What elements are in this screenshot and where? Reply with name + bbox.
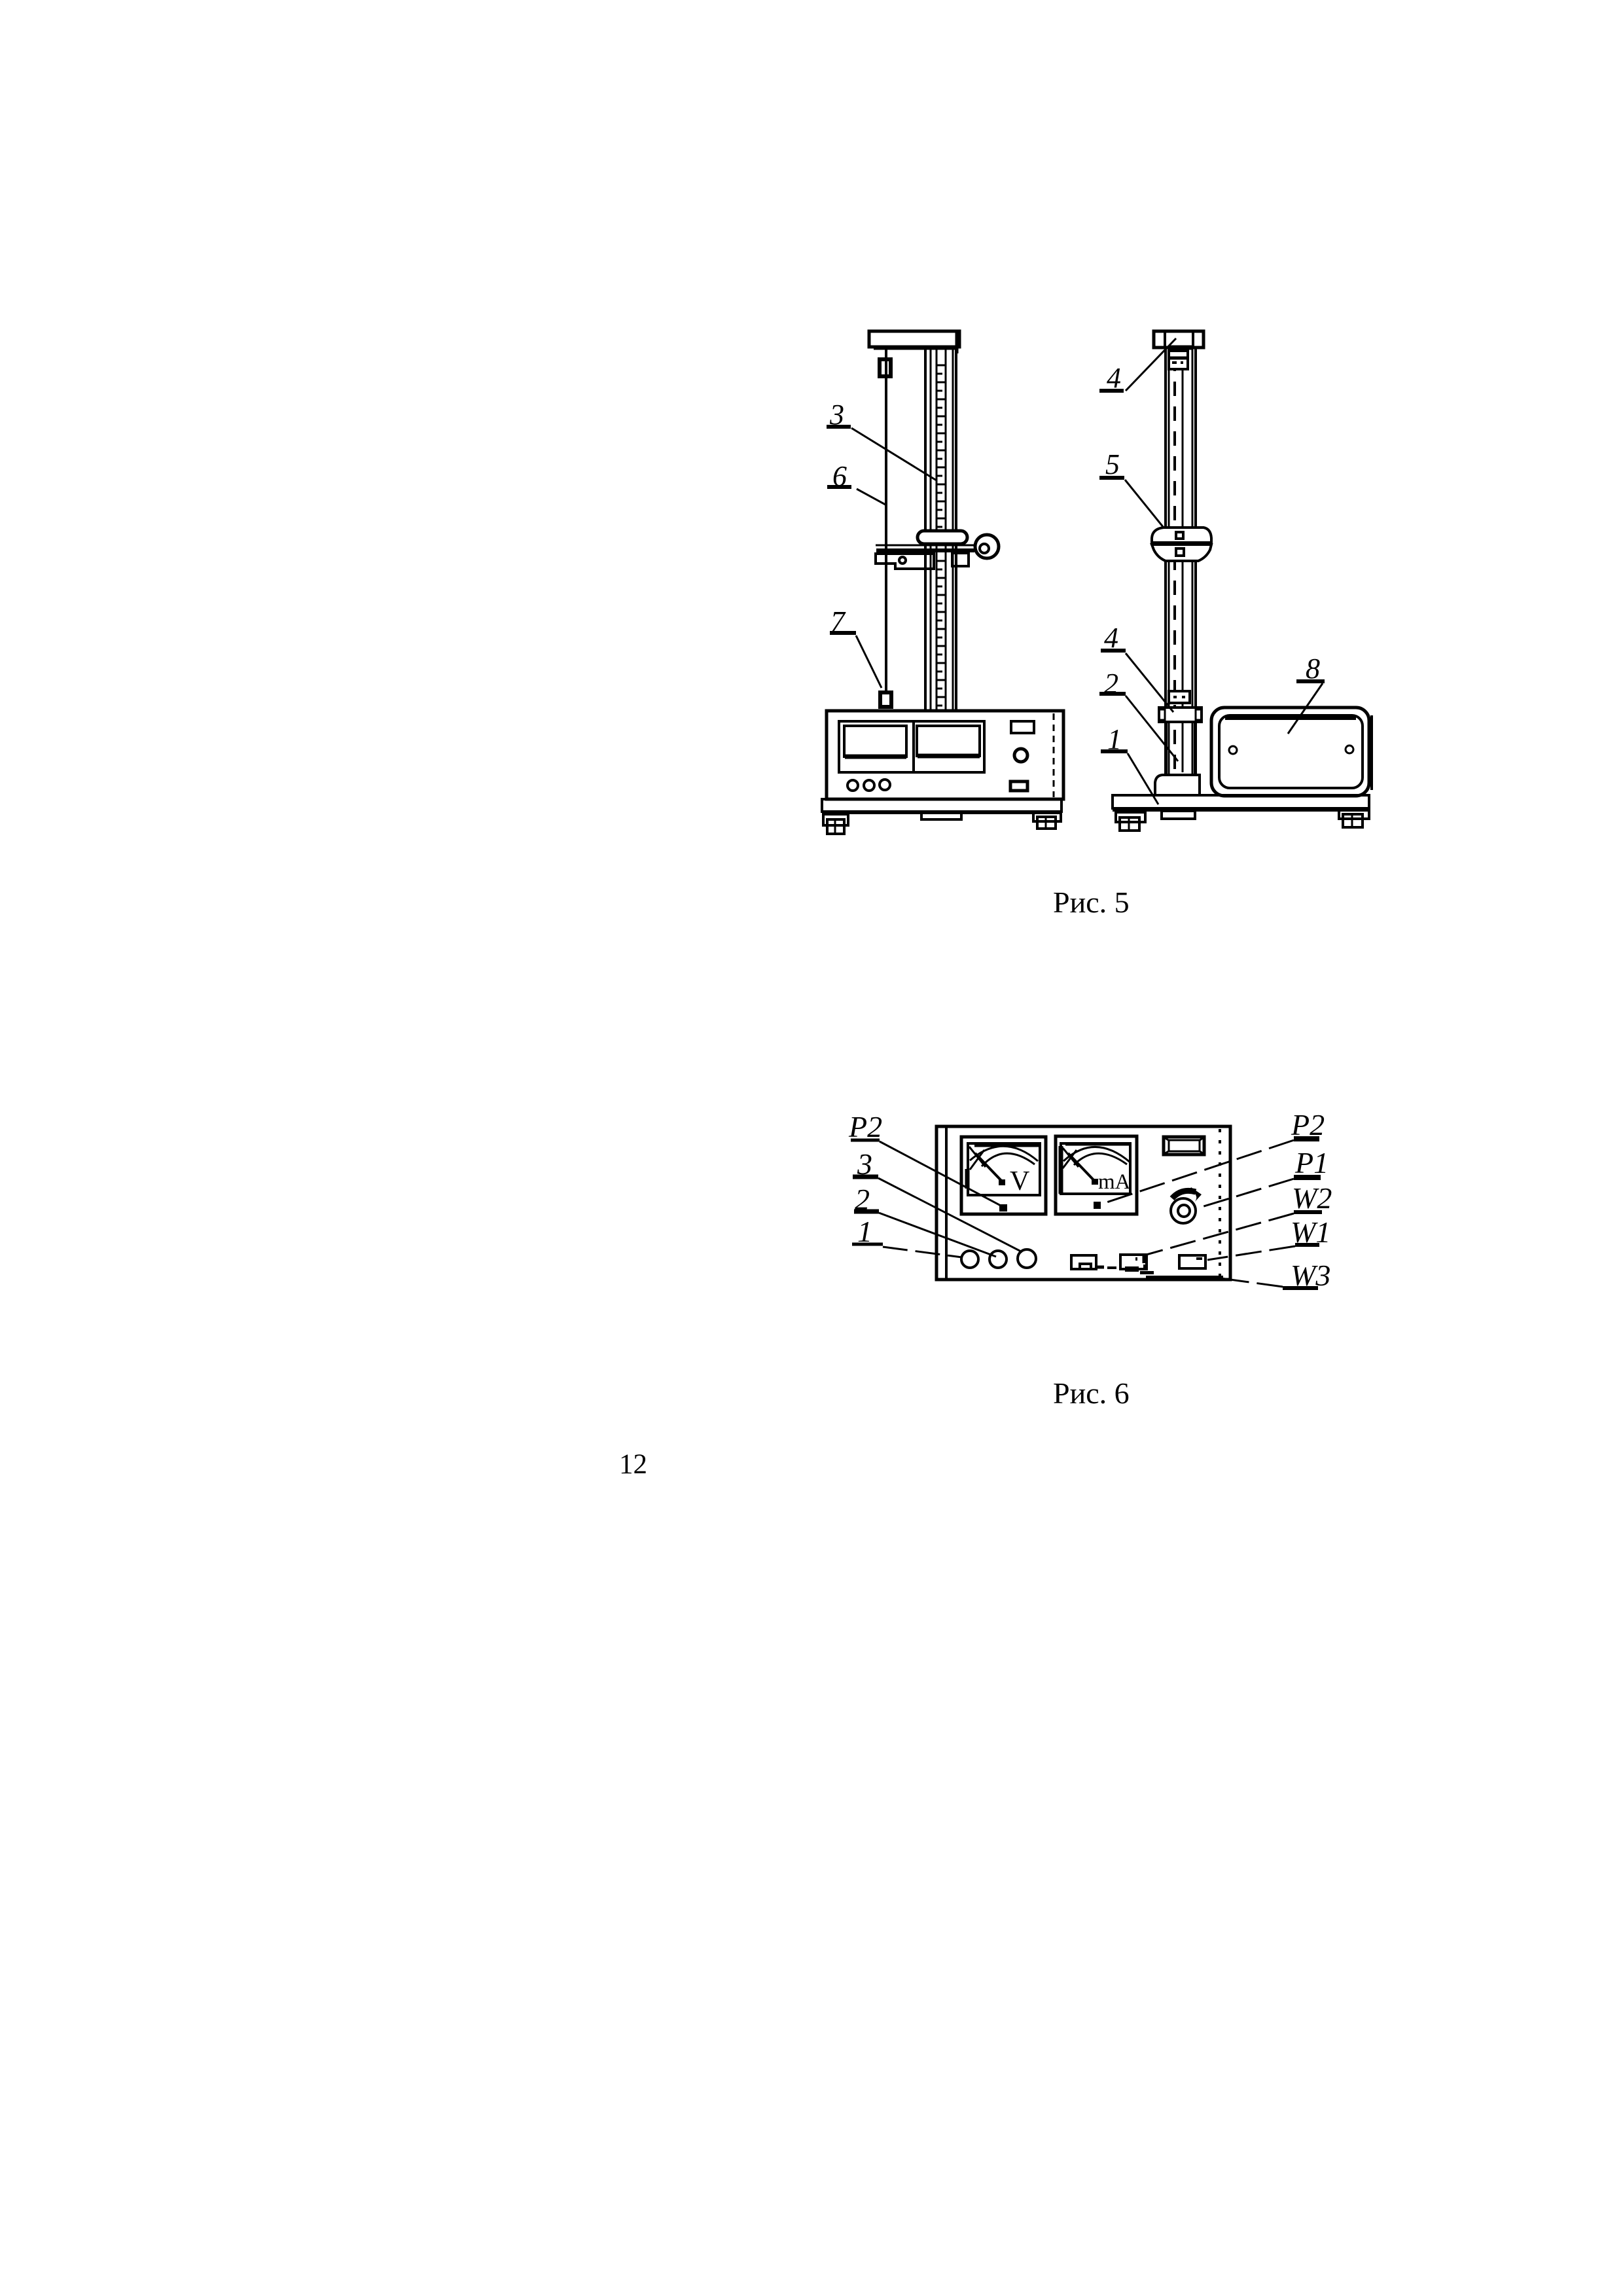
svg-text:P2: P2: [848, 1110, 882, 1143]
svg-text:12: 12: [619, 1449, 647, 1480]
svg-text:5: 5: [1105, 448, 1120, 480]
svg-text:Рис. 5: Рис. 5: [1053, 886, 1130, 919]
svg-text:W2: W2: [1292, 1181, 1332, 1215]
svg-text:Рис. 6: Рис. 6: [1053, 1376, 1130, 1410]
svg-text:mA: mA: [1098, 1170, 1131, 1194]
svg-text:P1: P1: [1294, 1146, 1329, 1179]
svg-text:V: V: [1010, 1166, 1029, 1196]
